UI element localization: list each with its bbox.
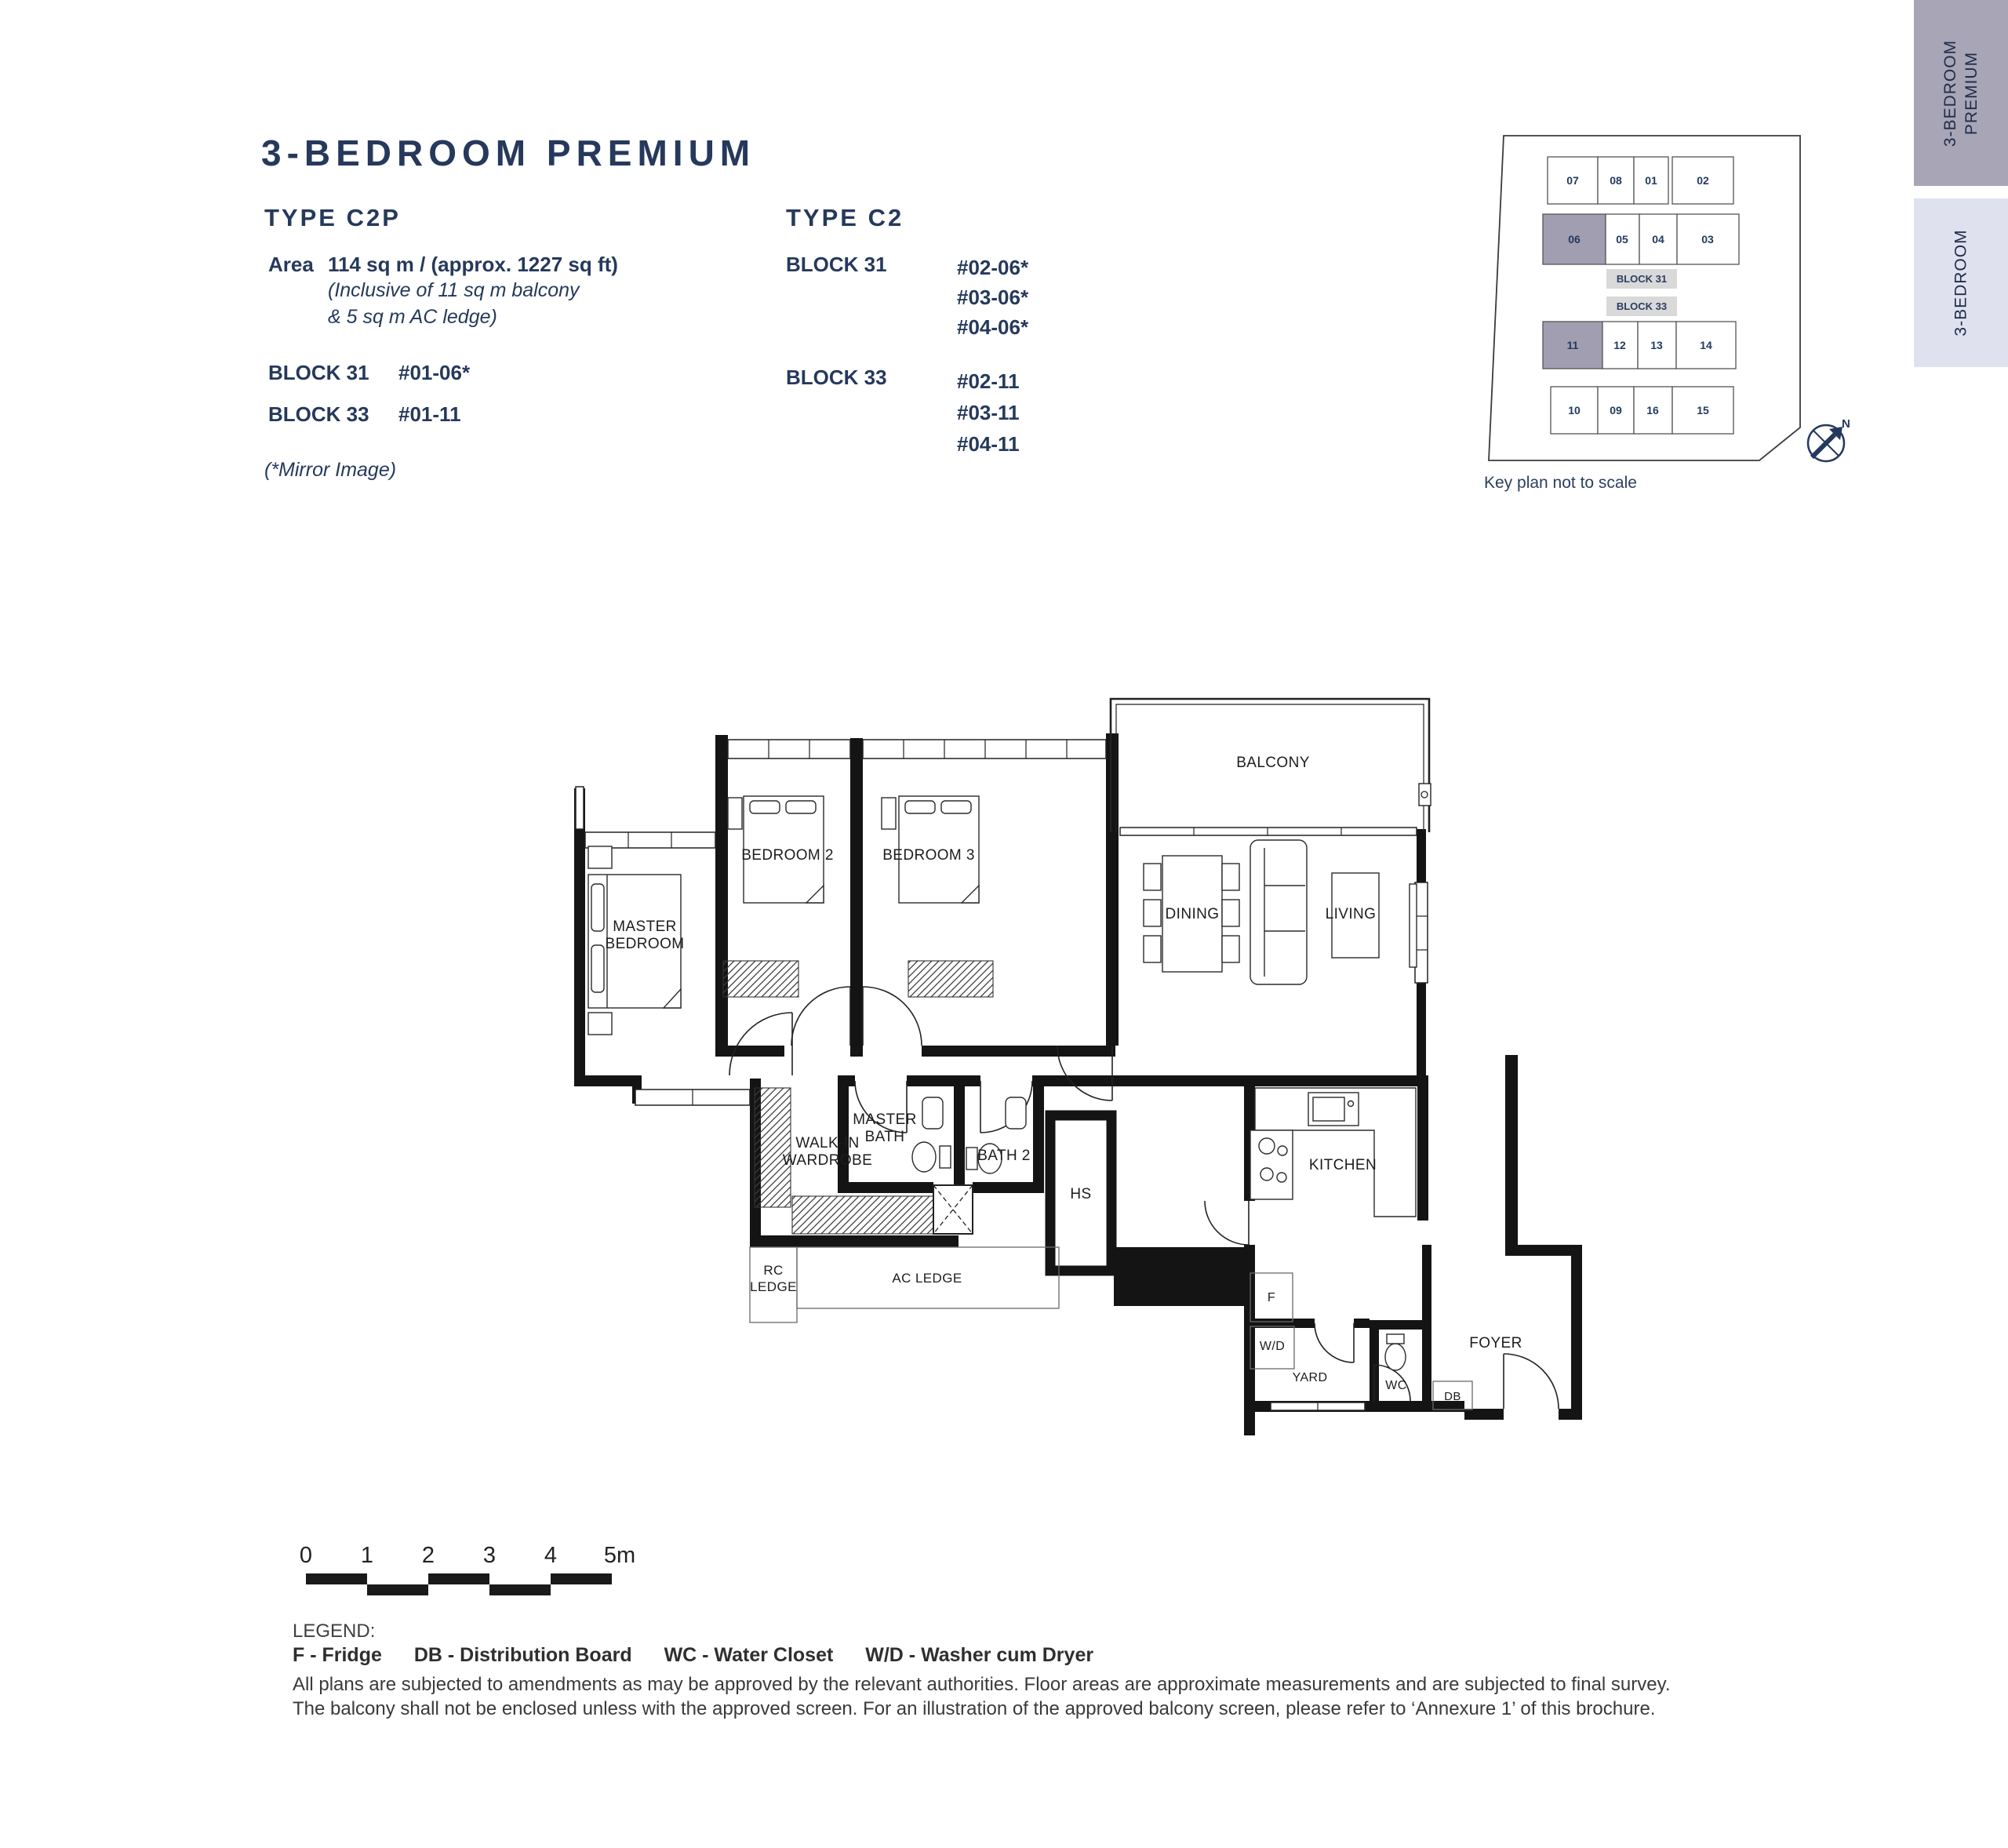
area-note-2: & 5 sq m AC ledge) [328,306,497,329]
svg-text:14: 14 [1700,339,1712,351]
room-label-wd: W/D [1260,1340,1285,1353]
room-label-walk-in: WALK-IN [795,1135,859,1151]
c2-b31-u2: #03-06* [957,282,1028,312]
type-c2-heading: TYPE C2 [786,204,904,232]
room-label-bath2: BATH 2 [977,1148,1031,1164]
svg-text:06: 06 [1568,233,1581,246]
legend-item-wd: W/D - Washer cum Dryer [865,1644,1093,1666]
svg-text:0: 0 [300,1543,312,1568]
svg-text:WARDROBE: WARDROBE [783,1152,872,1169]
keyplan-block31-tag: BLOCK 31 [1617,273,1667,285]
north-label: N [1842,417,1850,431]
svg-text:LEDGE: LEDGE [750,1279,797,1294]
svg-text:07: 07 [1566,174,1579,187]
walls [574,733,1582,1435]
page-title: 3-BEDROOM PREMIUM [261,132,755,174]
ac-unit-box [933,1185,973,1234]
room-label-living: LIVING [1326,906,1377,922]
c2-block33-units: #02-11 #03-11 #04-11 [957,366,1020,460]
brochure-page: 3-BEDROOM PREMIUM TYPE C2P Area114 sq m … [0,0,2008,1848]
svg-text:BATH: BATH [865,1129,905,1145]
c2p-block33-unit: #01-11 [398,402,461,426]
svg-text:01: 01 [1645,174,1657,187]
svg-text:16: 16 [1646,404,1659,417]
side-tab-3bedroom-premium[interactable]: 3-BEDROOM PREMIUM [1914,0,2008,186]
svg-text:15: 15 [1697,404,1709,417]
floor-plan: MASTER BEDROOM BEDROOM 2 BEDROOM 3 BALCO… [557,686,1592,1502]
mirror-note: (*Mirror Image) [264,459,396,482]
svg-text:12: 12 [1613,339,1626,351]
room-label-db: DB [1444,1390,1461,1403]
keyplan-units [1543,157,1739,434]
c2-block31-units: #02-06* #03-06* #04-06* [957,253,1028,342]
area-label: Area [268,253,328,277]
c2-b31-u3: #04-06* [957,312,1028,342]
key-plan: 07 08 01 02 06 05 04 03 11 12 13 14 10 0… [1475,122,1851,498]
room-label-foyer: FOYER [1469,1335,1522,1351]
legend-item-db: DB - Distribution Board [414,1644,632,1666]
room-label-balcony: BALCONY [1236,755,1310,771]
room-label-ac-ledge: AC LEDGE [892,1271,962,1286]
c2p-block33-row: BLOCK 33#01-11 [268,402,461,427]
keyplan-caption: Key plan not to scale [1484,474,1637,492]
area-value: 114 sq m / (approx. 1227 sq ft) [328,253,618,276]
side-tab-premium-label: 3-BEDROOM PREMIUM [1940,39,1982,146]
svg-text:05: 05 [1616,233,1628,246]
svg-text:5m: 5m [604,1543,635,1568]
balcony-drain-box [1419,784,1431,806]
area-note-1: (Inclusive of 11 sq m balcony [328,279,580,302]
svg-text:1: 1 [361,1543,373,1568]
room-label-dining: DINING [1166,906,1220,922]
svg-text:02: 02 [1697,174,1709,187]
disclaimer-line-1: All plans are subjected to amendments as… [293,1674,1671,1696]
keyplan-unit-numbers: 07 08 01 02 06 05 04 03 11 12 13 14 10 0… [1566,174,1714,417]
room-label-rc-ledge: RC [763,1263,783,1278]
keyplan-block33-tag: BLOCK 33 [1617,300,1667,312]
svg-text:2: 2 [422,1543,435,1568]
legend-heading: LEGEND: [293,1621,375,1642]
svg-text:4: 4 [544,1543,557,1568]
svg-text:3: 3 [483,1543,496,1568]
room-label-wc: WC [1385,1379,1406,1392]
room-label-bedroom3: BEDROOM 3 [882,847,975,864]
room-label-master-bath: MASTER [853,1111,917,1128]
svg-text:BEDROOM: BEDROOM [606,936,685,952]
side-tab-3bedroom[interactable]: 3-BEDROOM [1914,198,2008,367]
room-label-bedroom2: BEDROOM 2 [741,847,834,864]
disclaimer-line-2: The balcony shall not be enclosed unless… [293,1698,1655,1720]
room-label-fridge: F [1268,1291,1275,1304]
svg-text:04: 04 [1652,233,1664,246]
room-label-kitchen: KITCHEN [1309,1157,1377,1173]
legend-item-fridge: F - Fridge [293,1644,382,1666]
legend-item-wc: WC - Water Closet [664,1644,834,1666]
c2p-block33-label: BLOCK 33 [268,402,398,427]
c2-block31-label: BLOCK 31 [786,253,957,277]
c2-b33-u1: #02-11 [957,366,1020,397]
scale-bar: 0 1 2 3 4 5m [289,1539,657,1611]
svg-text:09: 09 [1610,404,1622,417]
area-row: Area114 sq m / (approx. 1227 sq ft) [268,253,618,277]
svg-text:11: 11 [1567,339,1579,351]
room-label-hs: HS [1070,1186,1091,1202]
c2-b31-u1: #02-06* [957,253,1028,282]
legend-items: F - Fridge DB - Distribution Board WC - … [293,1644,1120,1667]
svg-text:03: 03 [1701,233,1714,246]
scale-bar-segments [306,1573,612,1595]
balcony-slider [1120,828,1417,835]
c2-block33-label: BLOCK 33 [786,366,957,390]
c2-b33-u2: #03-11 [957,397,1020,428]
room-label-yard: YARD [1293,1371,1328,1384]
scale-ticks: 0 1 2 3 4 5m [300,1543,635,1568]
room-label-master-bedroom: MASTER [613,919,677,935]
side-tab-3bedroom-label: 3-BEDROOM [1951,229,1972,336]
c2p-block31-unit: #01-06* [398,361,470,384]
c2-b33-u3: #04-11 [957,428,1020,460]
svg-text:10: 10 [1568,404,1581,417]
type-c2p-heading: TYPE C2P [264,204,401,232]
svg-text:13: 13 [1650,339,1663,351]
c2p-block31-label: BLOCK 31 [268,361,398,385]
c2p-block31-row: BLOCK 31#01-06* [268,361,470,385]
svg-text:08: 08 [1610,174,1622,187]
north-compass-icon [1808,425,1844,461]
